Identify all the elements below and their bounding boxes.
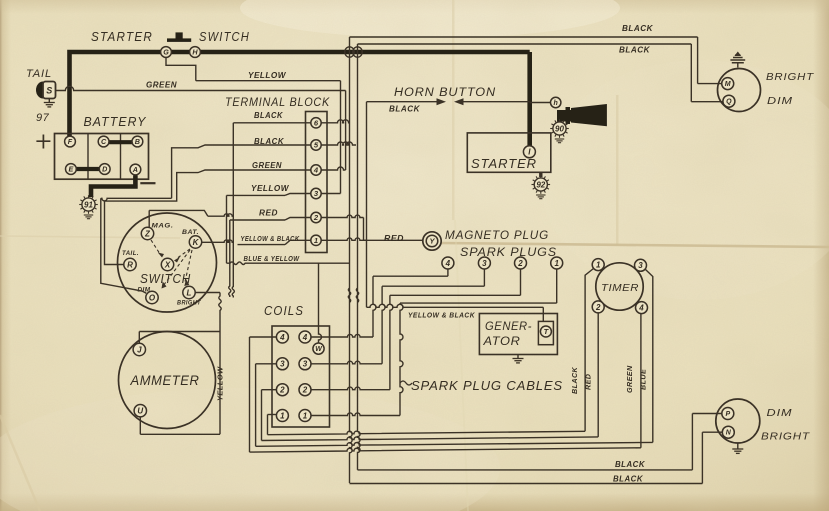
svg-text:C: C: [101, 137, 107, 146]
svg-text:3: 3: [482, 259, 487, 268]
svg-text:B: B: [135, 137, 140, 146]
svg-text:1: 1: [303, 411, 308, 420]
svg-text:4: 4: [279, 333, 285, 342]
svg-text:2: 2: [313, 213, 319, 222]
svg-text:Q: Q: [726, 99, 732, 106]
svg-text:3: 3: [303, 360, 308, 369]
svg-text:COILS: COILS: [264, 304, 304, 318]
svg-text:4: 4: [638, 304, 644, 313]
svg-text:BLACK: BLACK: [570, 366, 579, 394]
svg-text:MAG.: MAG.: [152, 223, 174, 230]
svg-text:1: 1: [314, 236, 318, 245]
svg-text:ATOR: ATOR: [482, 336, 520, 348]
svg-text:TAIL: TAIL: [26, 68, 52, 80]
svg-text:X: X: [164, 260, 171, 269]
svg-text:SPARK PLUGS: SPARK PLUGS: [460, 247, 557, 259]
svg-text:SWITCH: SWITCH: [199, 29, 250, 44]
svg-text:YELLOW & BLACK: YELLOW & BLACK: [241, 234, 300, 243]
svg-text:BLACK: BLACK: [619, 46, 651, 55]
svg-text:F: F: [68, 137, 73, 146]
svg-text:H: H: [192, 48, 198, 57]
svg-text:BLUE: BLUE: [638, 369, 647, 390]
svg-text:O: O: [149, 293, 156, 302]
svg-text:3: 3: [280, 360, 285, 369]
svg-text:3: 3: [638, 261, 643, 270]
svg-text:BLUE & YELLOW: BLUE & YELLOW: [244, 254, 300, 263]
svg-text:M: M: [725, 81, 731, 88]
svg-text:97: 97: [36, 112, 50, 124]
svg-text:STARTER: STARTER: [91, 29, 153, 44]
svg-text:S: S: [46, 86, 52, 96]
svg-text:BRIGHT: BRIGHT: [761, 431, 811, 443]
svg-text:RED: RED: [583, 374, 592, 390]
svg-text:GREEN: GREEN: [146, 81, 178, 90]
svg-text:BAT.: BAT.: [182, 229, 199, 236]
svg-text:2: 2: [595, 303, 601, 312]
svg-text:G: G: [163, 48, 169, 57]
svg-text:GENER-: GENER-: [485, 321, 532, 333]
svg-text:RED: RED: [259, 209, 278, 218]
svg-text:R: R: [127, 260, 133, 269]
svg-text:1: 1: [596, 261, 601, 270]
svg-text:BLACK: BLACK: [254, 111, 284, 120]
svg-text:HORN BUTTON: HORN BUTTON: [394, 87, 496, 99]
svg-text:BLACK: BLACK: [613, 475, 644, 484]
svg-text:TERMINAL BLOCK: TERMINAL BLOCK: [225, 97, 330, 109]
svg-text:4: 4: [313, 166, 319, 175]
svg-text:YELLOW: YELLOW: [215, 366, 224, 401]
svg-text:BLACK: BLACK: [615, 460, 646, 469]
svg-text:P: P: [725, 411, 730, 418]
svg-text:DIM: DIM: [767, 95, 793, 107]
svg-text:92: 92: [536, 181, 545, 190]
svg-text:DIM: DIM: [767, 407, 793, 419]
svg-text:RED: RED: [384, 234, 404, 243]
svg-text:BLACK: BLACK: [622, 24, 654, 33]
svg-text:TIMER: TIMER: [601, 282, 639, 294]
svg-text:h: h: [554, 100, 558, 107]
svg-text:SWITCH: SWITCH: [140, 272, 191, 286]
svg-text:TAIL.: TAIL.: [122, 250, 139, 257]
svg-text:2: 2: [279, 386, 285, 395]
svg-text:L: L: [187, 288, 192, 297]
svg-text:A: A: [132, 165, 138, 174]
svg-text:BLACK: BLACK: [254, 137, 285, 146]
svg-text:GREEN: GREEN: [252, 161, 282, 170]
svg-text:YELLOW: YELLOW: [251, 184, 289, 193]
svg-text:YELLOW & BLACK: YELLOW & BLACK: [408, 311, 475, 320]
svg-text:GREEN: GREEN: [625, 365, 634, 393]
svg-text:BRIGHT: BRIGHT: [177, 300, 202, 307]
svg-text:YELLOW: YELLOW: [248, 71, 287, 80]
svg-text:4: 4: [302, 333, 308, 342]
svg-text:BATTERY: BATTERY: [84, 114, 147, 129]
svg-text:1: 1: [554, 259, 559, 268]
svg-text:BLACK: BLACK: [389, 105, 421, 114]
svg-text:4: 4: [445, 259, 451, 268]
svg-text:U: U: [137, 407, 143, 416]
svg-text:E: E: [69, 165, 74, 174]
svg-text:SPARK PLUG CABLES: SPARK PLUG CABLES: [411, 379, 563, 393]
svg-text:D: D: [102, 165, 107, 174]
svg-text:STARTER: STARTER: [471, 157, 537, 171]
svg-text:91: 91: [84, 201, 93, 210]
svg-text:90: 90: [555, 125, 564, 134]
svg-text:J: J: [137, 345, 142, 354]
svg-text:BRIGHT: BRIGHT: [766, 71, 815, 83]
svg-text:2: 2: [517, 259, 523, 268]
svg-text:AMMETER: AMMETER: [130, 373, 200, 388]
svg-text:1: 1: [280, 411, 285, 420]
svg-text:2: 2: [302, 386, 308, 395]
svg-text:MAGNETO PLUG: MAGNETO PLUG: [445, 230, 549, 242]
